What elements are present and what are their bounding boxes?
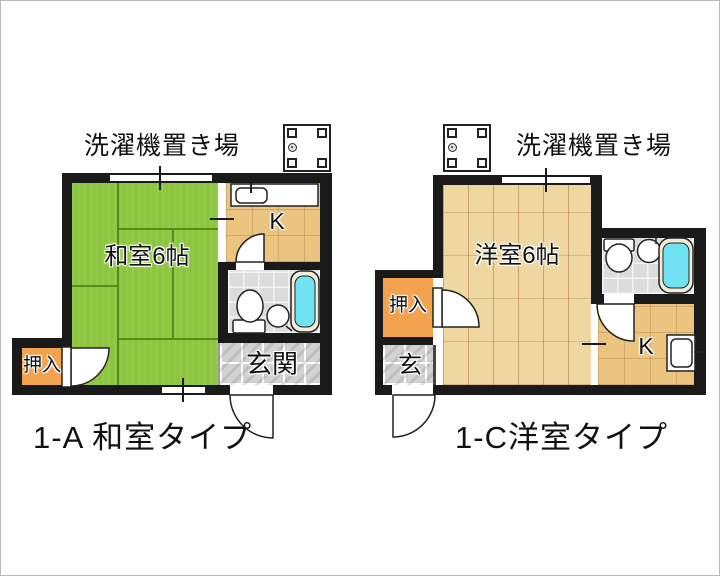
window-tick bbox=[182, 378, 184, 402]
closet-door-arc-1c bbox=[433, 288, 479, 327]
toilet-1a bbox=[233, 290, 265, 333]
kitchen-sink-1c bbox=[667, 335, 703, 371]
washbasin-1c bbox=[638, 235, 661, 263]
plan-title-1a: 1-A 和室タイプ bbox=[33, 412, 233, 457]
entry-door-arc-1c bbox=[393, 395, 435, 437]
washbasin-1a bbox=[267, 305, 292, 331]
opening-tick bbox=[582, 343, 606, 345]
kitchen-label-1c: K bbox=[626, 334, 666, 358]
kitchen-sink-1a bbox=[231, 183, 318, 206]
toilet-1c bbox=[604, 239, 634, 272]
entrance-label-1c: 玄 bbox=[390, 353, 430, 378]
bathtub-1c bbox=[659, 238, 693, 293]
bathtub-1a bbox=[291, 271, 319, 332]
window-tick bbox=[545, 168, 547, 192]
closet-label-1c: 押入 bbox=[383, 296, 433, 316]
closet-label-1a: 押入 bbox=[17, 356, 67, 376]
opening-tick bbox=[210, 218, 234, 220]
kitchen-label-1a: K bbox=[257, 209, 297, 233]
room-label-1a: 和室6帖 bbox=[87, 244, 207, 269]
fixtures-overlay bbox=[0, 0, 720, 576]
floorplan-canvas: 洗濯機置き場 和室6帖 K 玄関 押入 1-A 和室タイプ 洗濯機置き場 洋室6… bbox=[0, 0, 720, 576]
room-label-1c: 洋室6帖 bbox=[457, 243, 577, 268]
entrance-label-1a: 玄関 bbox=[232, 351, 312, 378]
window-tick bbox=[159, 166, 161, 190]
plan-title-1c: 1-C洋室タイプ bbox=[455, 412, 655, 457]
bath-door-arc-1a bbox=[236, 234, 264, 262]
closet-door-arc-1a bbox=[62, 347, 109, 387]
laundry-area-label-1c: 洗濯機置き場 bbox=[514, 133, 674, 159]
laundry-area-label-1a: 洗濯機置き場 bbox=[82, 133, 242, 159]
